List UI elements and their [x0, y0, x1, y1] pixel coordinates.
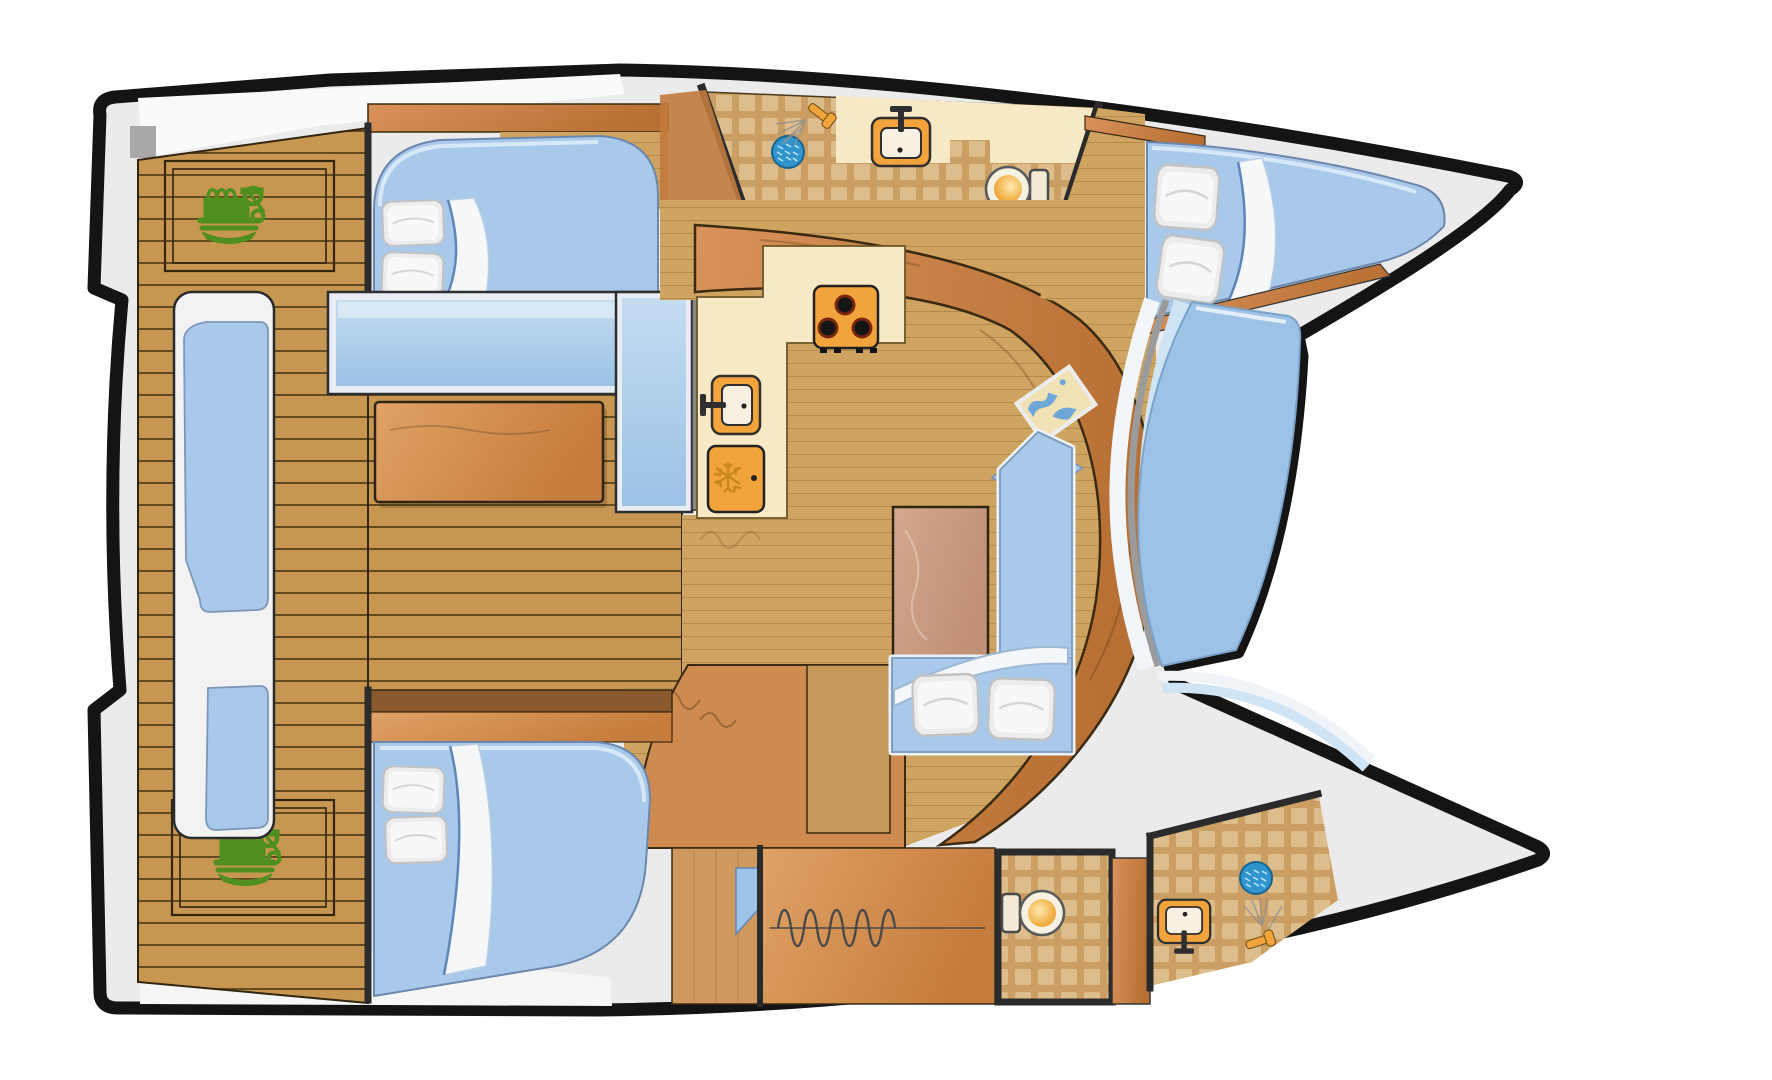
yacht-floor-plan — [0, 0, 1772, 1080]
locker — [760, 848, 995, 1004]
shower-drain-top — [772, 136, 804, 168]
bench-cushion-top — [184, 322, 268, 612]
shower-drain-bottom — [1240, 862, 1272, 894]
head-divider — [1112, 858, 1150, 1004]
corridor — [672, 848, 995, 1004]
salon-aft-steps — [639, 665, 905, 848]
floor-plan-canvas — [0, 0, 1772, 1080]
refrigerator — [708, 446, 764, 512]
salon-table — [893, 507, 988, 657]
cockpit-table — [375, 402, 607, 508]
toilet-bottom — [1002, 891, 1064, 935]
starboard-aft-head — [998, 852, 1150, 1004]
stern-bench — [174, 292, 274, 838]
stove — [814, 286, 878, 353]
bench-cushion-bottom — [206, 686, 268, 830]
transom-step-top — [130, 126, 156, 158]
